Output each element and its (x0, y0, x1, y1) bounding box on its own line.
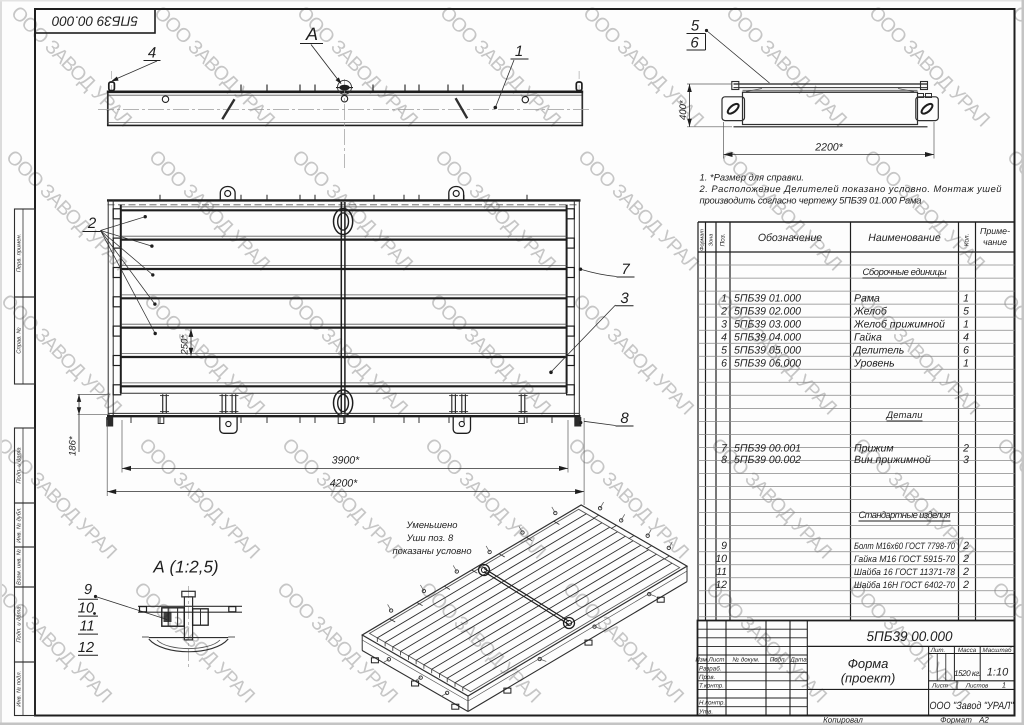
svg-text:Вин прижимной: Вин прижимной (854, 454, 931, 466)
svg-text:4: 4 (148, 45, 156, 62)
svg-text:Подп. и дата: Подп. и дата (16, 447, 23, 484)
svg-text:12: 12 (715, 579, 727, 591)
svg-text:Утв.: Утв. (698, 708, 713, 715)
svg-text:5ПБ39 04.000: 5ПБ39 04.000 (734, 331, 801, 343)
svg-text:2: 2 (962, 566, 969, 578)
svg-text:Листов: Листов (965, 682, 989, 689)
svg-text:5ПБ39 05.000: 5ПБ39 05.000 (734, 345, 801, 357)
svg-text:Разраб.: Разраб. (699, 665, 721, 672)
svg-text:3900*: 3900* (332, 455, 360, 467)
svg-text:Пров.: Пров. (699, 674, 715, 681)
svg-text:Взам. инв. №: Взам. инв. № (17, 548, 23, 585)
svg-text:Обозначение: Обозначение (758, 232, 822, 244)
svg-text:4: 4 (963, 331, 969, 343)
svg-text:Гайка М16 ГОСТ 5915-70: Гайка М16 ГОСТ 5915-70 (854, 554, 956, 564)
svg-text:3: 3 (721, 318, 727, 330)
svg-text:Лист: Лист (931, 682, 948, 689)
svg-text:5: 5 (721, 345, 727, 357)
svg-text:Сборочные единицы: Сборочные единицы (863, 266, 947, 277)
svg-text:Болт М16х60 ГОСТ 7798-70: Болт М16х60 ГОСТ 7798-70 (854, 541, 956, 551)
svg-text:2: 2 (962, 553, 969, 565)
svg-text:1: 1 (963, 358, 969, 370)
svg-text:1520 кг.: 1520 кг. (954, 669, 981, 678)
svg-text:Лит.: Лит. (930, 647, 946, 654)
svg-text:7: 7 (621, 261, 630, 278)
svg-text:4200*: 4200* (330, 478, 358, 490)
svg-text:2: 2 (87, 215, 97, 232)
svg-text:9: 9 (721, 540, 727, 552)
svg-text:11: 11 (716, 566, 727, 578)
svg-text:Шайба 16 ГОСТ 11371-78: Шайба 16 ГОСТ 11371-78 (854, 567, 956, 577)
svg-text:5ПБ39 01.000: 5ПБ39 01.000 (734, 292, 801, 304)
svg-text:чание: чание (983, 237, 1007, 247)
svg-text:Зона: Зона (709, 234, 715, 247)
svg-text:Кол.: Кол. (964, 233, 971, 246)
svg-text:6: 6 (963, 345, 969, 357)
svg-text:5: 5 (963, 305, 969, 317)
svg-text:400*: 400* (678, 100, 689, 120)
svg-text:186*: 186* (68, 436, 79, 456)
svg-text:5ПБ39 00.000: 5ПБ39 00.000 (867, 628, 953, 644)
svg-text:№ докум.: № докум. (732, 657, 759, 664)
svg-text:ООО "Завод "УРАЛ": ООО "Завод "УРАЛ" (930, 700, 1015, 712)
svg-text:Н.контр.: Н.контр. (699, 700, 725, 707)
svg-text:Приме-: Приме- (980, 226, 1010, 236)
svg-text:1. *Размер для справки.: 1. *Размер для справки. (700, 172, 805, 183)
svg-text:Подп.: Подп. (770, 657, 786, 664)
svg-text:2. Расположение Делителей по: 2. Расположение Делителей показано услов… (699, 183, 1003, 194)
svg-text:Инв. № подл.: Инв. № подл. (16, 671, 23, 707)
svg-text:5ПБ39 02.000: 5ПБ39 02.000 (734, 305, 801, 317)
svg-text:Т.контр.: Т.контр. (699, 683, 724, 690)
svg-text:Уменьшено: Уменьшено (406, 519, 458, 530)
svg-text:Копировал: Копировал (823, 715, 863, 724)
svg-text:А: А (305, 24, 318, 44)
svg-text:Формат: Формат (940, 715, 972, 724)
svg-text:3: 3 (620, 290, 629, 307)
svg-text:Рама: Рама (854, 292, 880, 304)
svg-text:10: 10 (78, 601, 94, 617)
svg-text:250*: 250* (180, 335, 191, 356)
svg-text:5: 5 (691, 18, 700, 35)
svg-text:А (1:2,5): А (1:2,5) (152, 558, 218, 577)
svg-text:Перв. примен.: Перв. примен. (17, 234, 23, 273)
svg-text:Поз.: Поз. (720, 233, 727, 246)
svg-text:6: 6 (721, 358, 727, 370)
svg-text:производить согласно чертежу: производить согласно чертежу 5ПБ39 01.00… (700, 195, 922, 206)
svg-text:Лист: Лист (708, 657, 725, 664)
svg-text:1: 1 (721, 292, 727, 304)
svg-text:Стандартные изделия: Стандартные изделия (859, 509, 951, 520)
svg-text:Детали: Детали (886, 409, 924, 420)
svg-text:4: 4 (721, 331, 727, 343)
svg-text:12: 12 (78, 640, 94, 656)
svg-text:5ПБ39 03.000: 5ПБ39 03.000 (734, 318, 801, 330)
svg-text:Прижим: Прижим (854, 442, 894, 454)
svg-text:1: 1 (963, 292, 969, 304)
svg-text:1: 1 (515, 43, 523, 60)
svg-text:6: 6 (690, 35, 699, 52)
svg-text:8: 8 (620, 410, 629, 427)
svg-text:показаны условно: показаны условно (392, 545, 471, 556)
svg-text:Дата: Дата (789, 657, 807, 664)
svg-text:Масштаб: Масштаб (983, 647, 1012, 654)
svg-text:8: 8 (721, 454, 727, 466)
svg-text:Справ. №: Справ. № (16, 327, 23, 354)
svg-text:Уровень: Уровень (853, 358, 895, 370)
svg-text:2: 2 (720, 305, 727, 317)
svg-text:(проект): (проект) (841, 671, 896, 686)
svg-text:Уши поз. 8: Уши поз. 8 (406, 532, 454, 543)
svg-text:2200*: 2200* (814, 142, 843, 154)
svg-text:Желоб: Желоб (853, 305, 888, 317)
svg-text:2: 2 (962, 579, 969, 591)
svg-text:5ПБ39 00.000: 5ПБ39 00.000 (51, 13, 138, 28)
svg-text:Формат: Формат (700, 229, 706, 251)
svg-text:11: 11 (79, 619, 94, 635)
svg-text:5ПБ39 00.001: 5ПБ39 00.001 (734, 442, 801, 454)
svg-text:1: 1 (963, 318, 969, 330)
svg-text:Наименование: Наименование (868, 232, 941, 244)
svg-text:10: 10 (715, 553, 727, 565)
svg-text:Подп. и дата: Подп. и дата (16, 606, 23, 643)
svg-text:Инв. № дубл.: Инв. № дубл. (16, 507, 23, 543)
svg-text:Изм.: Изм. (695, 657, 708, 664)
svg-text:Желоб прижимной: Желоб прижимной (853, 318, 945, 330)
svg-text:1: 1 (1002, 681, 1006, 690)
svg-text:5ПБ39 00.002: 5ПБ39 00.002 (734, 454, 801, 466)
svg-text:Масса: Масса (958, 647, 977, 654)
svg-text:Гайка: Гайка (854, 331, 882, 343)
svg-text:1:10: 1:10 (987, 667, 1009, 679)
svg-text:2: 2 (962, 442, 969, 454)
svg-text:Делитель: Делитель (853, 345, 904, 357)
svg-text:А2: А2 (978, 715, 989, 724)
svg-text:5ПБ39 06.000: 5ПБ39 06.000 (734, 358, 801, 370)
svg-text:Форма: Форма (848, 656, 889, 671)
svg-text:2: 2 (962, 540, 969, 552)
svg-text:Шайба 16Н ГОСТ 6402-70: Шайба 16Н ГОСТ 6402-70 (854, 580, 956, 590)
svg-text:3: 3 (963, 454, 969, 466)
svg-text:9: 9 (84, 582, 92, 598)
